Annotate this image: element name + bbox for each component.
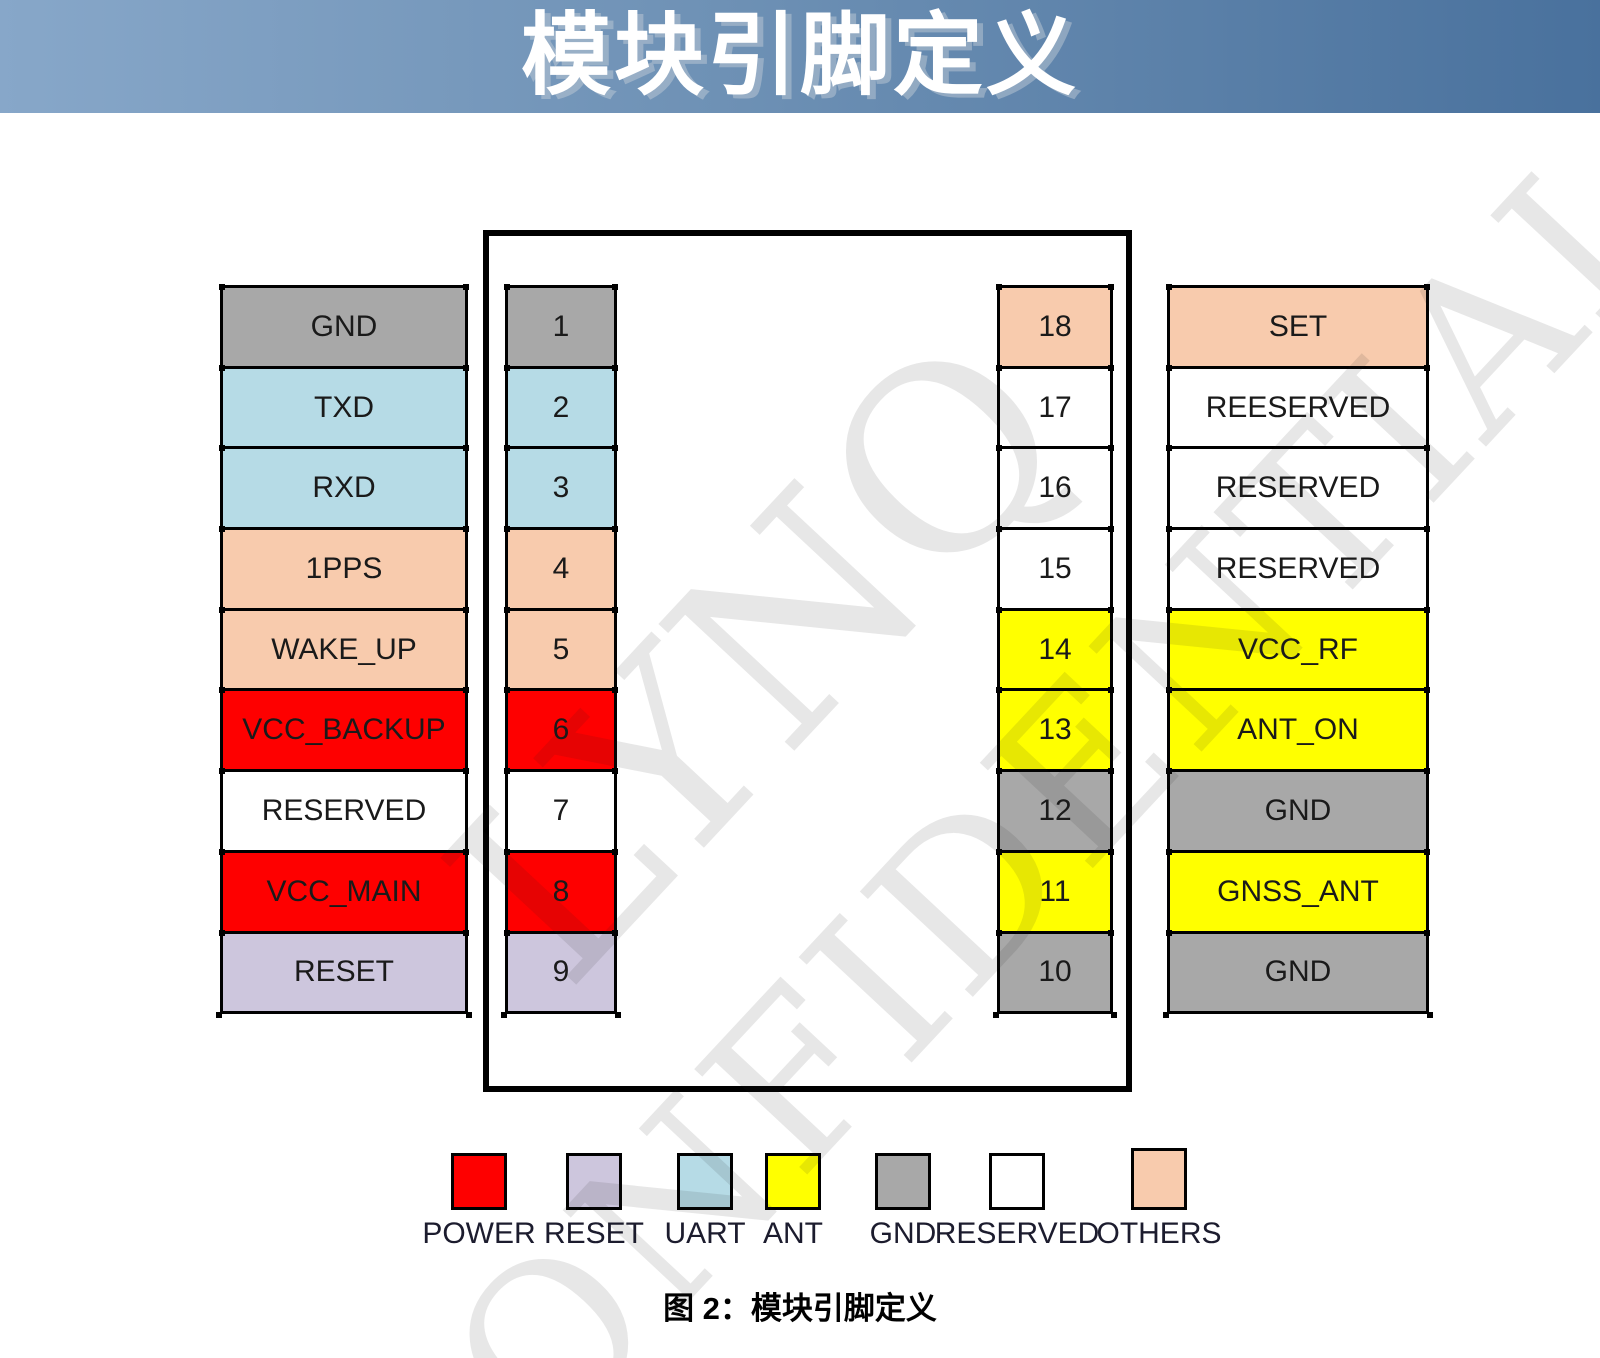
reset-color-swatch	[566, 1153, 622, 1210]
pin-name-cell: VCC_MAIN	[220, 850, 468, 934]
legend-label: RESET	[544, 1217, 644, 1251]
pin-name-cell: GNSS_ANT	[1167, 850, 1429, 934]
page-header: 模块引脚定义	[0, 0, 1600, 113]
pin-number-cell: 3	[505, 446, 617, 530]
pin-name-cell: ANT_ON	[1167, 688, 1429, 772]
pin-number-cell: 8	[505, 850, 617, 934]
pin-name-cell: VCC_RF	[1167, 608, 1429, 692]
legend: POWERRESETUARTANTGNDRESERVEDOTHERS	[0, 1153, 1600, 1263]
pin-name-cell: RXD	[220, 446, 468, 530]
uart-color-swatch	[677, 1153, 733, 1210]
pin-number-cell: 5	[505, 608, 617, 692]
legend-item-reserved: RESERVED	[952, 1153, 1082, 1251]
pin-number-cell: 12	[997, 769, 1113, 853]
pin-number-cell: 17	[997, 366, 1113, 450]
pin-number-cell: 10	[997, 931, 1113, 1015]
pin-name-cell: RESERVED	[1167, 446, 1429, 530]
pin-number-cell: 15	[997, 527, 1113, 611]
legend-label: OTHERS	[1096, 1217, 1221, 1251]
legend-label: RESERVED	[935, 1217, 1100, 1251]
pin-number-cell: 13	[997, 688, 1113, 772]
legend-item-others: OTHERS	[1094, 1153, 1224, 1251]
pin-name-cell: RESET	[220, 931, 468, 1015]
figure-caption: 图 2：模块引脚定义	[0, 1283, 1600, 1328]
pin-name-cell: GND	[1167, 931, 1429, 1015]
pin-name-cell: VCC_BACKUP	[220, 688, 468, 772]
pin-number-cell: 16	[997, 446, 1113, 530]
pin-name-cell: 1PPS	[220, 527, 468, 611]
page-title: 模块引脚定义	[521, 0, 1079, 113]
pin-name-cell: GND	[1167, 769, 1429, 853]
right-pin-names-column: SETREESERVEDRESERVEDRESERVEDVCC_RFANT_ON…	[1167, 285, 1429, 1014]
left-pin-numbers-column: 123456789	[505, 285, 617, 1014]
pin-number-cell: 2	[505, 366, 617, 450]
pin-name-cell: WAKE_UP	[220, 608, 468, 692]
legend-label: GND	[870, 1217, 937, 1251]
legend-item-power: POWER	[414, 1153, 544, 1251]
pin-number-cell: 6	[505, 688, 617, 772]
left-pin-names-column: GNDTXDRXD1PPSWAKE_UPVCC_BACKUPRESERVEDVC…	[220, 285, 468, 1014]
reserved-color-swatch	[989, 1153, 1045, 1210]
pin-name-cell: TXD	[220, 366, 468, 450]
pin-name-cell: SET	[1167, 285, 1429, 369]
pin-name-cell: RESERVED	[1167, 527, 1429, 611]
pin-name-cell: RESERVED	[220, 769, 468, 853]
pin-number-cell: 7	[505, 769, 617, 853]
power-color-swatch	[451, 1153, 507, 1210]
pin-number-cell: 11	[997, 850, 1113, 934]
pin-number-cell: 9	[505, 931, 617, 1015]
legend-label: POWER	[422, 1217, 535, 1251]
right-pin-numbers-column: 181716151413121110	[997, 285, 1113, 1014]
pin-number-cell: 18	[997, 285, 1113, 369]
pin-number-cell: 4	[505, 527, 617, 611]
ant-color-swatch	[765, 1153, 821, 1210]
pin-name-cell: GND	[220, 285, 468, 369]
pin-number-cell: 1	[505, 285, 617, 369]
gnd-color-swatch	[875, 1153, 931, 1210]
pin-number-cell: 14	[997, 608, 1113, 692]
legend-label: ANT	[763, 1217, 823, 1251]
pin-name-cell: REESERVED	[1167, 366, 1429, 450]
others-color-swatch	[1131, 1148, 1187, 1210]
page: 模块引脚定义 GNDTXDRXD1PPSWAKE_UPVCC_BACKUPRES…	[0, 0, 1600, 1358]
